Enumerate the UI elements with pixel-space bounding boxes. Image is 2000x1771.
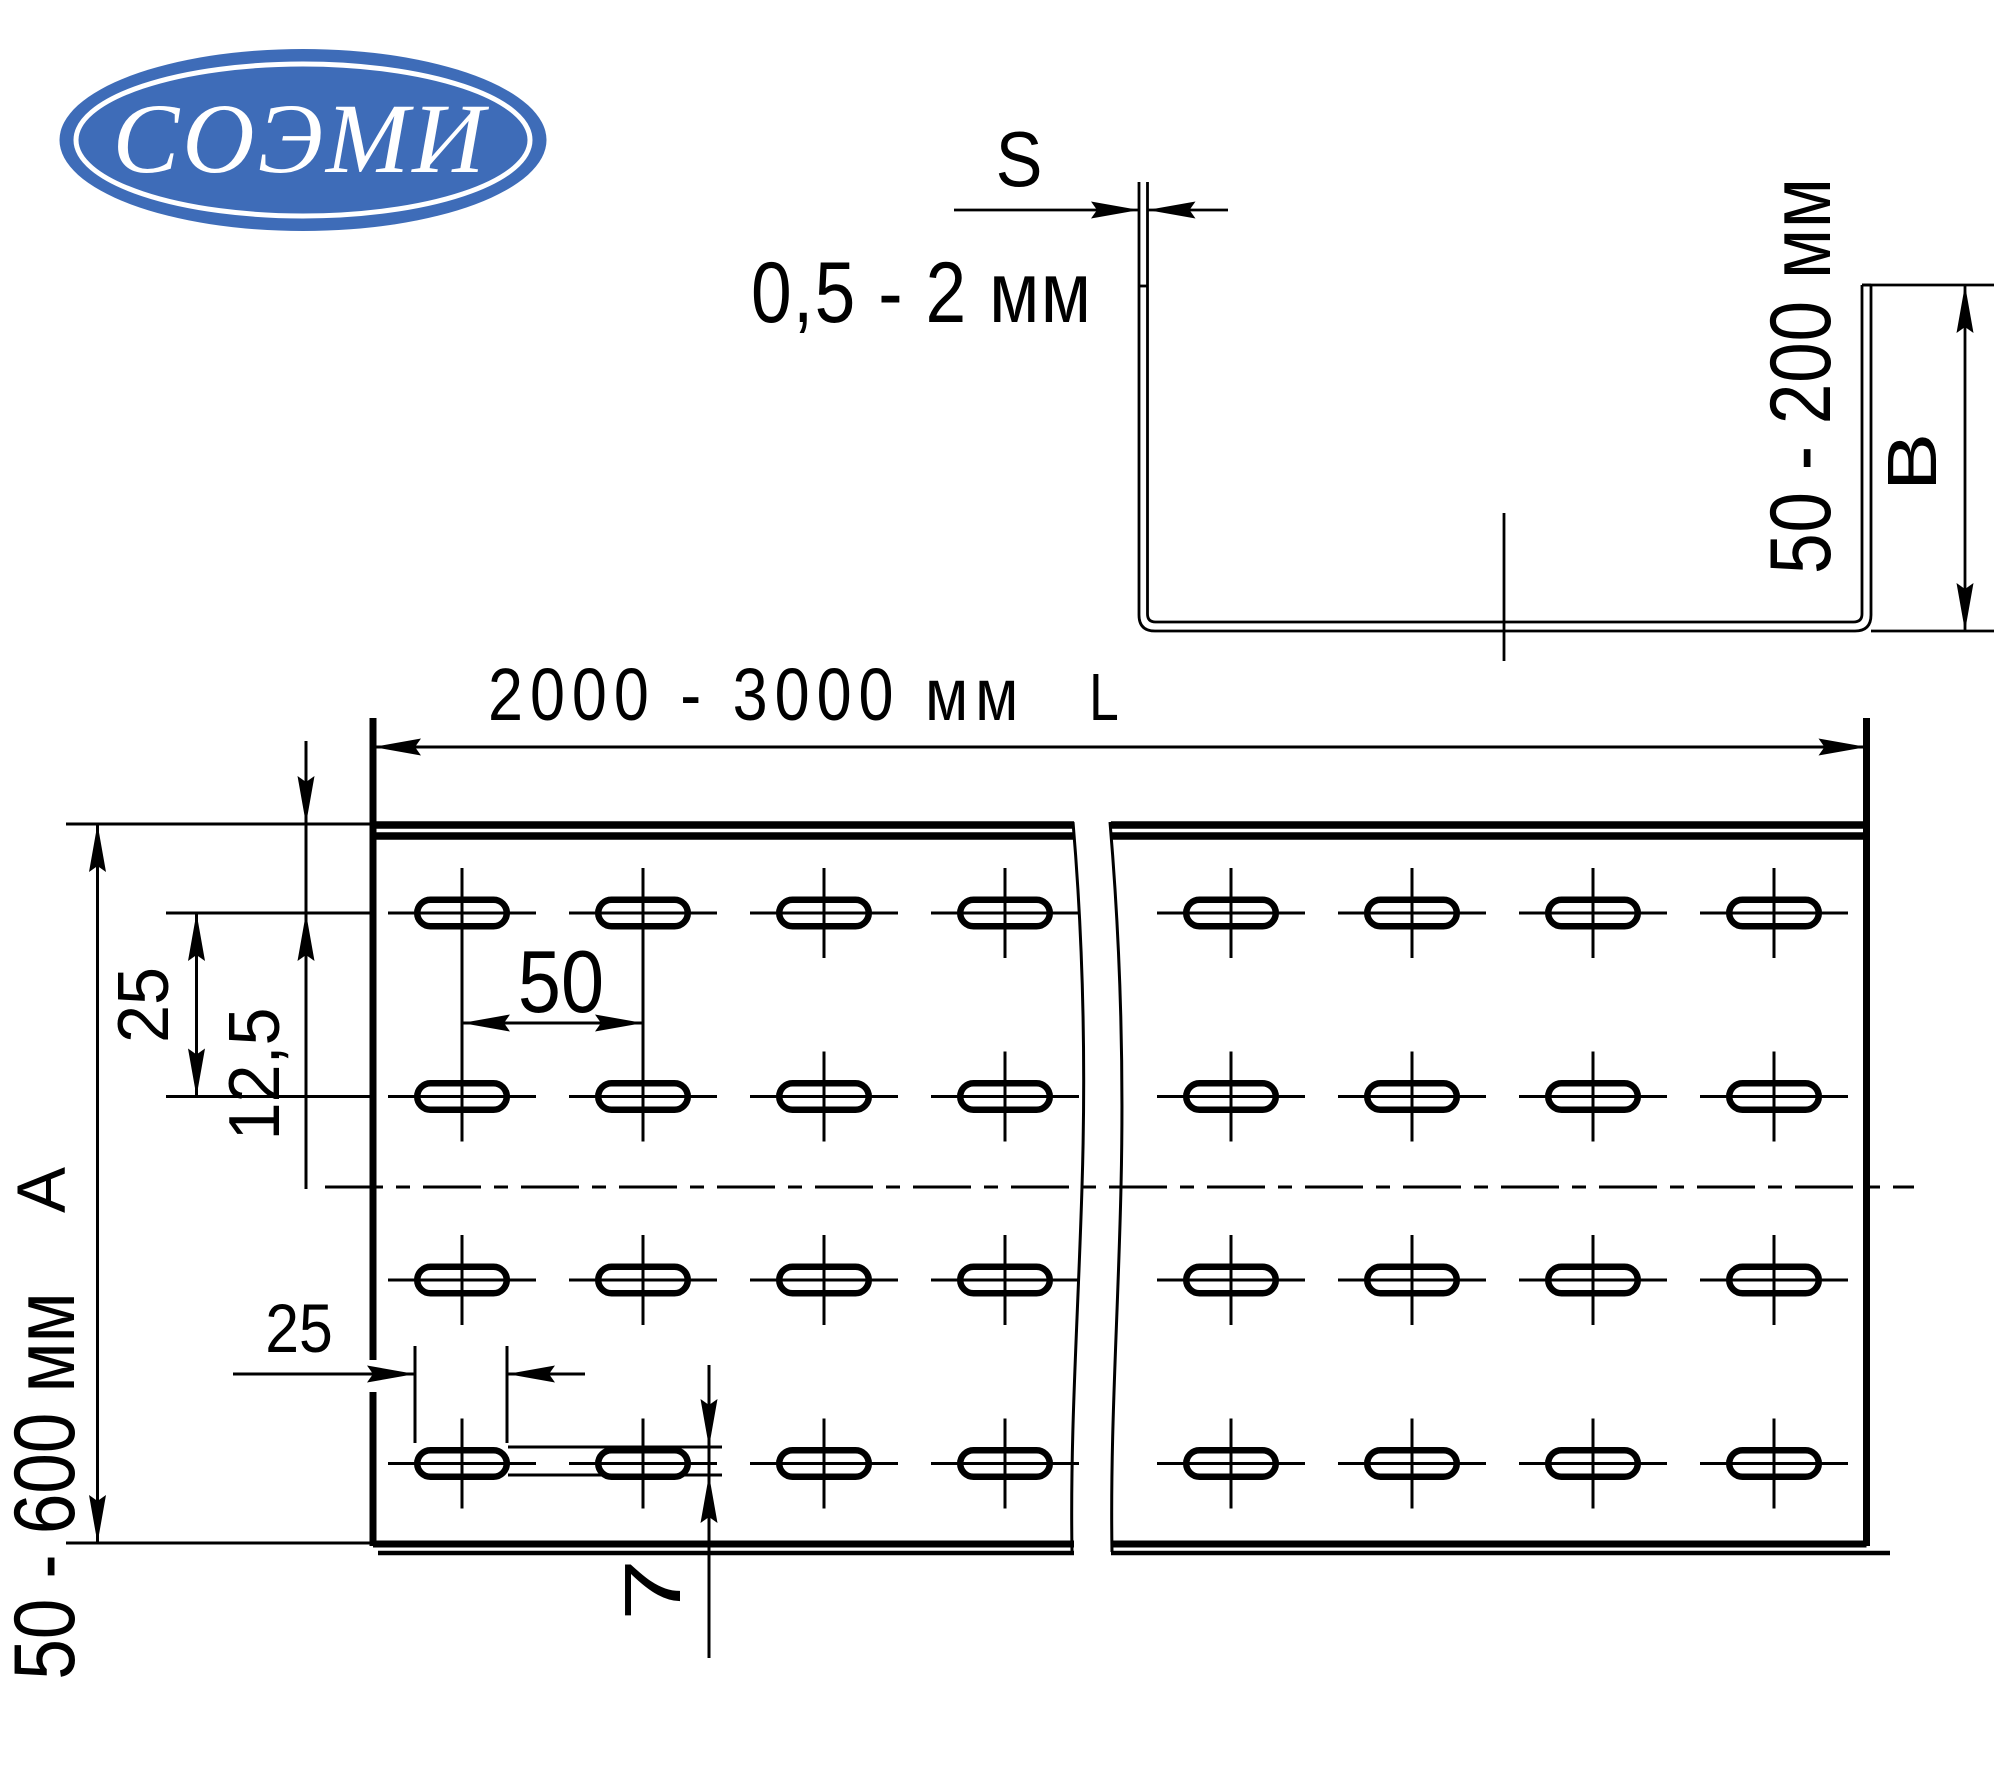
svg-text:50: 50 — [518, 932, 604, 1031]
svg-text:A: A — [3, 1167, 80, 1213]
svg-text:В: В — [1872, 433, 1951, 491]
svg-text:СОЭМИ: СОЭМИ — [113, 83, 490, 194]
svg-text:L: L — [1089, 659, 1119, 734]
svg-text:25: 25 — [102, 967, 183, 1043]
svg-text:25: 25 — [265, 1289, 333, 1367]
svg-text:S: S — [996, 116, 1043, 203]
svg-text:12,5: 12,5 — [213, 1007, 294, 1140]
svg-text:0,5 - 2 мм: 0,5 - 2 мм — [751, 244, 1091, 340]
svg-text:50 - 200 мм: 50 - 200 мм — [1752, 178, 1848, 574]
svg-text:7: 7 — [608, 1559, 698, 1621]
svg-text:50 - 600 мм: 50 - 600 мм — [0, 1292, 92, 1680]
